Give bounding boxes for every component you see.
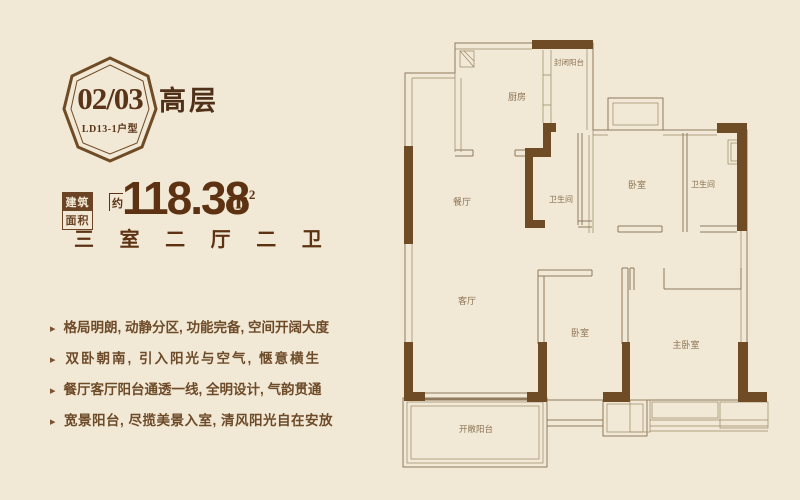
- room-label-bathroom-2: 卫生间: [691, 179, 715, 189]
- room-label-bedroom-south: 卧室: [571, 327, 589, 338]
- unit-badge: 02/03 LD13-1户型: [59, 56, 161, 164]
- room-label-enclosed-balcony: 封闭阳台: [554, 57, 584, 67]
- room-label-master-bedroom: 主卧室: [672, 339, 699, 350]
- area-approx: 约: [109, 193, 123, 211]
- bullet-icon: ▸: [50, 353, 58, 366]
- feature-item: ▸ 格局明朗, 动静分区, 功能完备, 空间开阔大度: [50, 316, 333, 335]
- bay-window-master: [630, 400, 768, 432]
- interior-walls: [455, 133, 741, 426]
- feature-text: 宽景阳台, 尽揽美景入室, 清风阳光自在安放: [64, 409, 333, 429]
- bullet-icon: ▸: [50, 322, 56, 335]
- room-label-kitchen: 厨房: [508, 91, 526, 102]
- feature-list: ▸ 格局明朗, 动静分区, 功能完备, 空间开阔大度 ▸ 双卧朝南, 引入阳光与…: [50, 316, 333, 440]
- feature-item: ▸ 宽景阳台, 尽揽美景入室, 清风阳光自在安放: [50, 409, 333, 428]
- badge-number: 02/03: [59, 83, 161, 114]
- feature-item: ▸ 双卧朝南, 引入阳光与空气, 惬意横生: [50, 347, 333, 366]
- area-unit-base: m: [228, 187, 249, 214]
- room-label-bedroom-north: 卧室: [628, 179, 646, 190]
- enclosed-balcony-window: [543, 50, 551, 123]
- bullet-icon: ▸: [50, 415, 56, 428]
- room-label-living: 客厅: [458, 295, 476, 306]
- area-label-top: 建筑: [62, 192, 93, 211]
- floor-type-label: 高层: [159, 79, 219, 118]
- feature-text: 餐厅客厅阳台通透一线, 全明设计, 气韵贯通: [64, 378, 322, 398]
- feature-item: ▸ 餐厅客厅阳台通透一线, 全明设计, 气韵贯通: [50, 378, 333, 397]
- bay-window-bedroom: [603, 400, 647, 436]
- badge-model: LD13-1户型: [59, 120, 161, 135]
- room-label-dining: 餐厅: [453, 196, 471, 207]
- bay-window-top: [608, 98, 663, 130]
- kitchen-flue: [460, 51, 474, 67]
- area-unit-exp: 2: [249, 187, 256, 202]
- area-unit: m2: [228, 187, 255, 215]
- feature-text: 双卧朝南, 引入阳光与空气, 惬意横生: [66, 347, 322, 367]
- bullet-icon: ▸: [50, 384, 56, 397]
- feature-text: 格局明朗, 动静分区, 功能完备, 空间开阔大度: [64, 316, 330, 336]
- room-label-bathroom-1: 卫生间: [549, 194, 573, 204]
- floorplan-flyer: 封闭阳台 厨房 餐厅 卫生间 卧室 卫生间 客厅 卧室 主卧室 开敞阳台 02/…: [0, 0, 800, 500]
- room-label-open-balcony: 开敞阳台: [459, 424, 493, 434]
- layout-summary: 三 室 二 厅 二 卫: [74, 223, 332, 252]
